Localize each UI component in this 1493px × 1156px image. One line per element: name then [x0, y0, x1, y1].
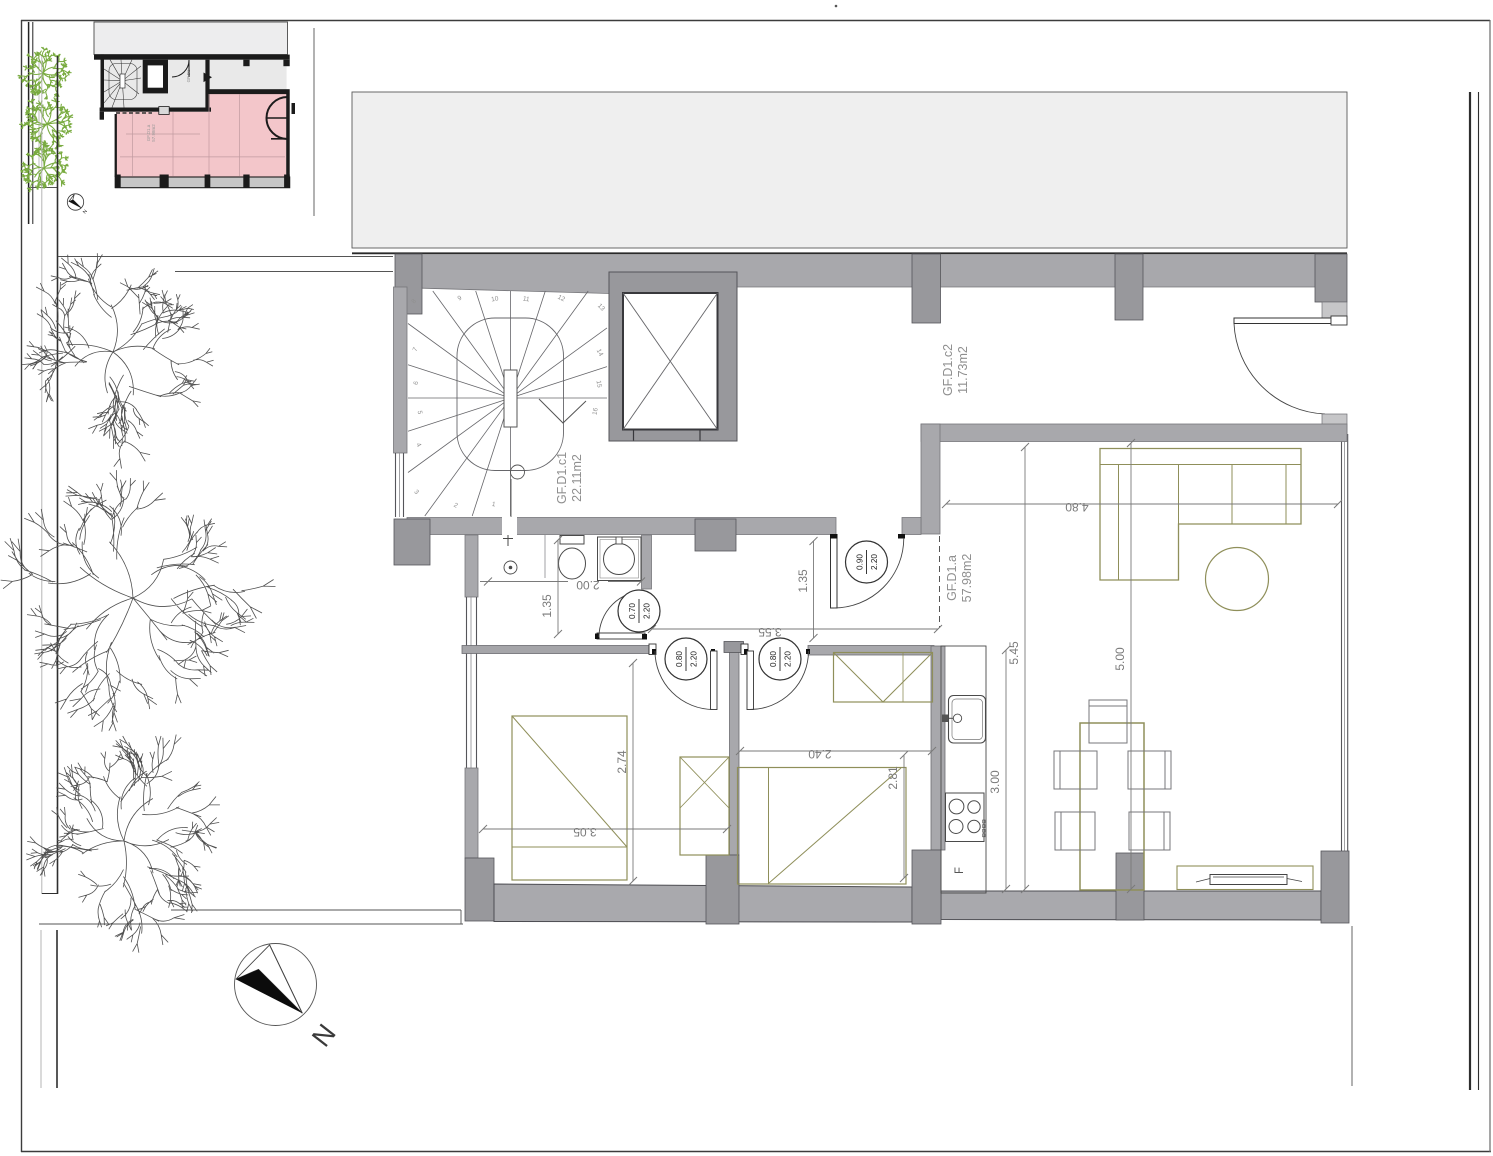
svg-text:4.80: 4.80 [1065, 500, 1089, 514]
svg-text:2.74: 2.74 [615, 750, 629, 774]
svg-text:0.90: 0.90 [856, 554, 865, 570]
svg-text:F: F [954, 867, 966, 874]
svg-text:1.35: 1.35 [796, 569, 810, 593]
svg-text:15: 15 [595, 380, 603, 389]
svg-text:10: 10 [491, 295, 500, 303]
svg-text:0.80: 0.80 [675, 651, 684, 667]
svg-text:GF.D1.c2: GF.D1.c2 [941, 344, 955, 396]
svg-text:2.20: 2.20 [643, 603, 652, 619]
svg-text:2.20: 2.20 [870, 554, 879, 570]
svg-text:2.81: 2.81 [886, 766, 900, 790]
svg-text:2.00: 2.00 [576, 578, 600, 592]
svg-text:2.40: 2.40 [808, 747, 832, 761]
svg-text:3.05: 3.05 [573, 825, 597, 839]
svg-text:57.98m2: 57.98m2 [960, 554, 974, 603]
svg-text:2.20: 2.20 [690, 651, 699, 667]
svg-text:2.20: 2.20 [784, 651, 793, 667]
svg-text:57.98m2: 57.98m2 [151, 124, 156, 142]
svg-text:3.55: 3.55 [758, 625, 782, 639]
svg-text:16: 16 [592, 407, 600, 416]
svg-text:GF.D1.a: GF.D1.a [945, 555, 959, 601]
svg-text:22.11m2: 22.11m2 [570, 454, 584, 502]
svg-text:GF.D1.c1: GF.D1.c1 [555, 452, 569, 504]
svg-text:11.73m2: 11.73m2 [956, 346, 970, 394]
svg-text:3.00: 3.00 [988, 770, 1002, 794]
svg-text:5.45: 5.45 [1007, 641, 1021, 665]
svg-text:1.35: 1.35 [540, 594, 554, 618]
svg-text:5.00: 5.00 [1113, 647, 1127, 671]
svg-text:0.80: 0.80 [769, 651, 778, 667]
svg-text:0.70: 0.70 [628, 603, 637, 619]
